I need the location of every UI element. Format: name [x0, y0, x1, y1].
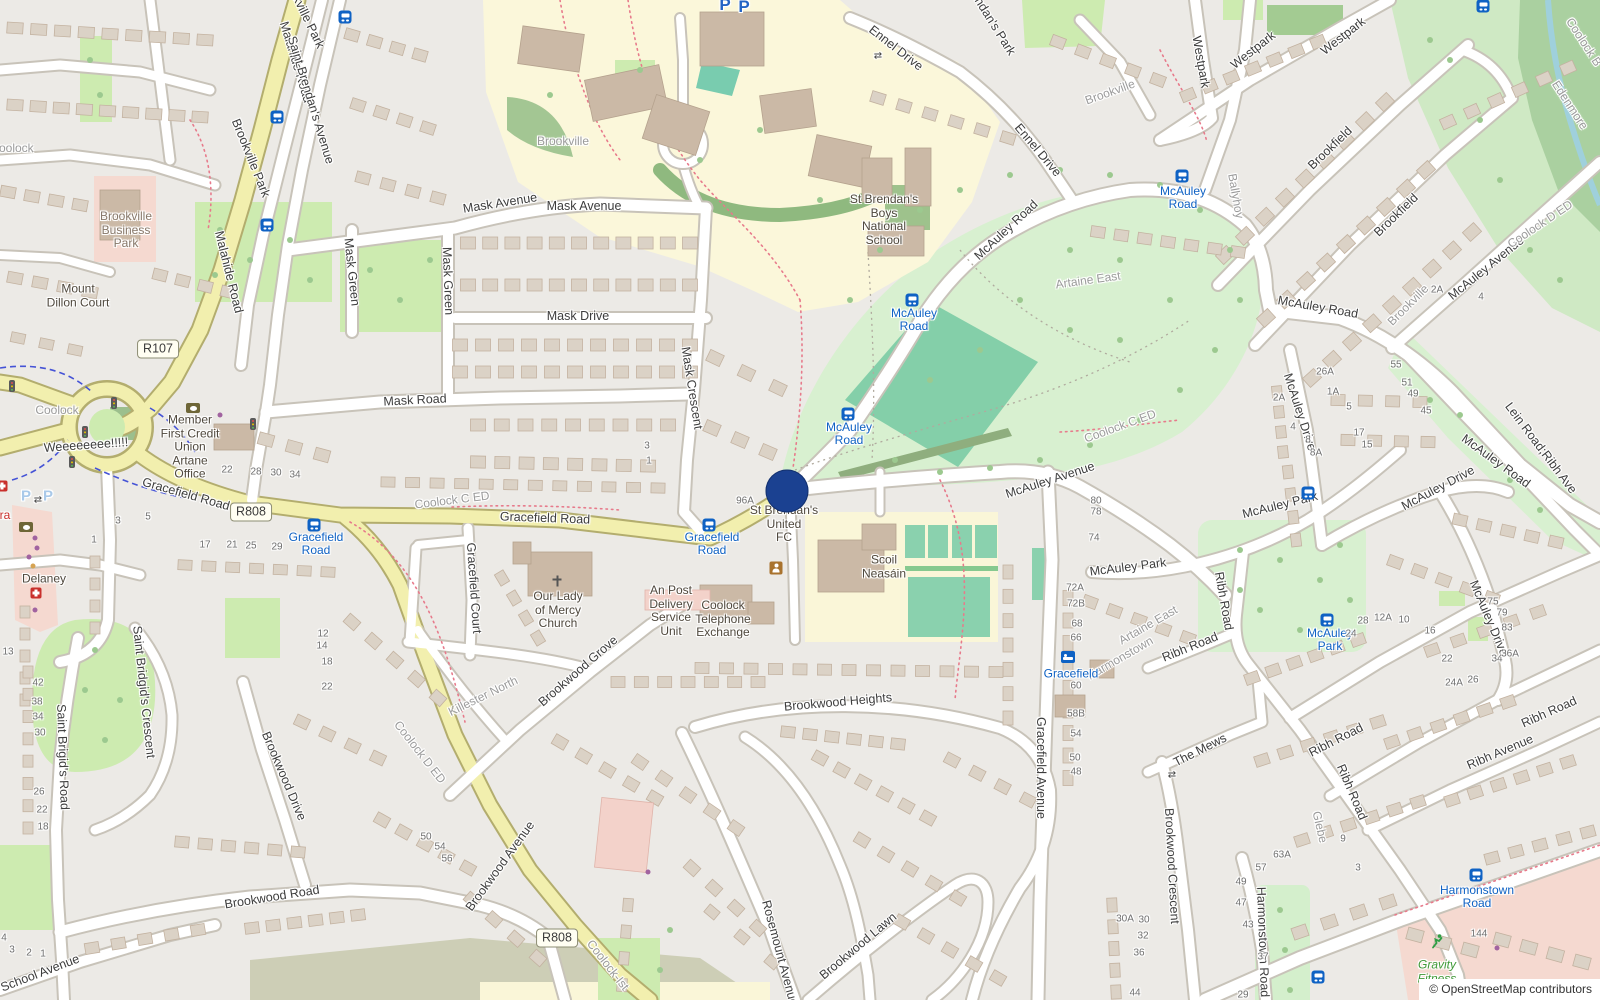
map-canvas[interactable]: Malahide RoadMalahide RoadSaint Brendan'… — [0, 0, 1600, 1000]
attribution: © OpenStreetMap contributors — [1419, 979, 1600, 1000]
map-marker[interactable] — [766, 470, 809, 513]
